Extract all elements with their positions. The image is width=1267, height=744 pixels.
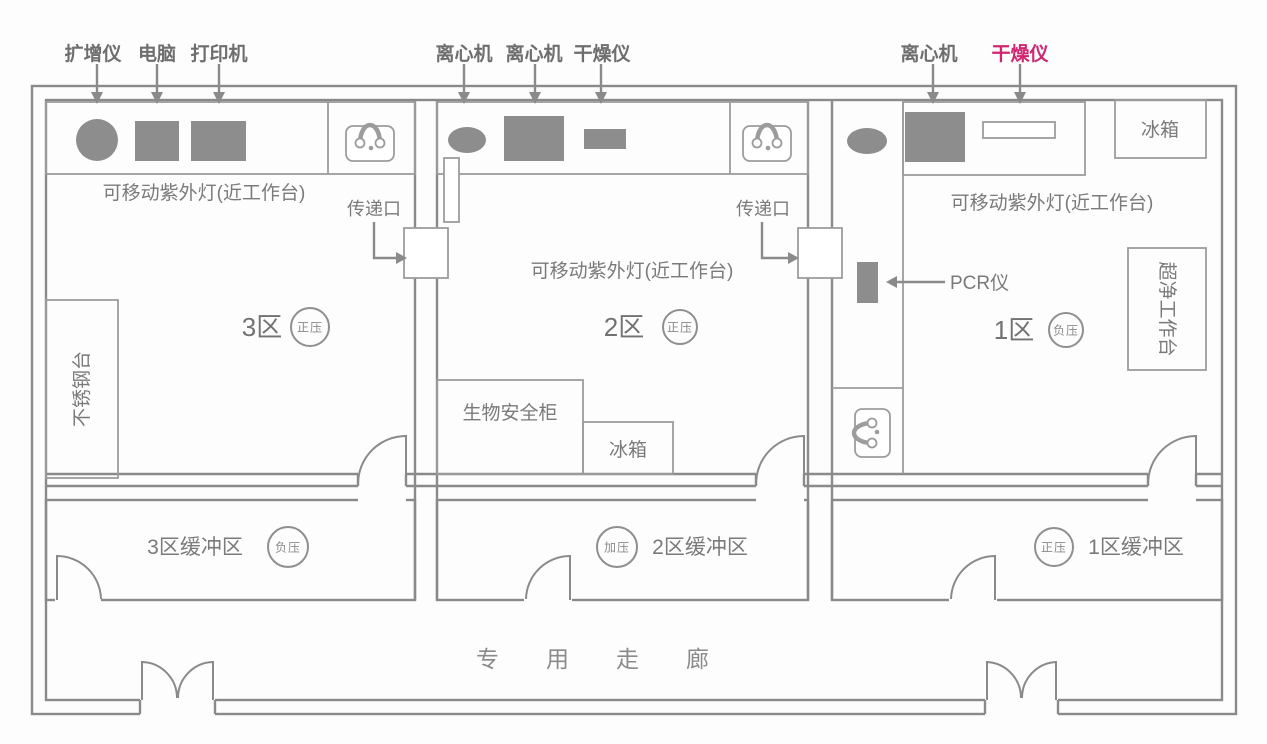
pass-window-box-left [404,228,448,278]
pcr-lab-floorplan: 扩增仪 电脑 打印机 离心机 离心机 干燥仪 离心机 干燥仪 可移动紫外灯(近工… [0,0,1267,744]
floorplan-canvas: 扩增仪 电脑 打印机 离心机 离心机 干燥仪 离心机 干燥仪 可移动紫外灯(近工… [0,0,1267,744]
centrifuge-shape [847,128,887,154]
centrifuge-shape [448,127,486,153]
callout-arrows [91,64,1026,288]
zone3-uv-note: 可移动紫外灯(近工作台) [103,182,306,204]
pcr-label: PCR仪 [950,273,1009,294]
pressure-badge-buffer1-text: 正压 [1041,541,1067,555]
outer-walls [32,86,1236,714]
biosafety-cabinet-label: 生物安全柜 [462,402,557,424]
equipment-label-centrifuge: 离心机 [435,42,492,65]
pressure-badge-buffer2-text: 加压 [604,541,630,555]
zone1-label: 1区 [994,315,1034,345]
zone1-uv-note: 可移动紫外灯(近工作台) [951,192,1154,214]
pressure-badge-zone1-text: 负压 [1053,324,1079,338]
steel-table-label: 不锈钢台 [71,351,93,427]
biosafety-cabinet-box [437,380,583,474]
pressure-badge-buffer3-text: 负压 [275,541,301,555]
door-buffer3-corridor [57,556,101,600]
centrifuge-shape [504,116,564,161]
sink-icon [743,125,791,161]
zone1-fridge-label: 冰箱 [1141,119,1179,141]
clean-bench-label: 超净工作台 [1156,261,1178,356]
dryer-shape [983,122,1055,138]
door-buffer2-corridor [526,556,570,600]
centrifuge-shape [905,112,965,162]
equipment-label-computer: 电脑 [138,42,176,65]
equipment-label-dryer: 干燥仪 [573,43,631,65]
computer-shape [135,121,179,161]
equipment [76,112,1055,457]
zone2-label: 2区 [604,312,644,342]
dryer-shape [584,129,626,149]
zone2-uv-note: 可移动紫外灯(近工作台) [531,260,734,282]
door-buffer1-corridor [951,556,995,600]
printer-shape [191,121,246,161]
equipment-label-printer: 打印机 [190,42,247,65]
buffer2-label: 2区缓冲区 [652,536,748,559]
equipment-label-centrifuge: 离心机 [505,42,562,65]
amplifier-shape [76,119,118,161]
buffer3-label: 3区缓冲区 [147,536,243,559]
thin-fixture [444,158,459,222]
pcr-machine-shape [857,262,878,303]
zone3-label: 3区 [242,312,282,342]
pressure-badge-zone2-text: 正压 [667,321,693,335]
buffer1-label: 1区缓冲区 [1088,536,1184,559]
sink-icon [854,409,890,457]
equipment-label-amplifier: 扩增仪 [64,42,122,65]
corridor-label: 专用走廊 [476,646,756,672]
sink-icon [346,125,394,161]
pass-window-label: 传递口 [736,199,790,219]
pass-window-box-right [798,228,842,278]
zone2-fridge-label: 冰箱 [609,439,647,461]
equipment-label-dryer-highlight: 干燥仪 [991,43,1049,65]
equipment-label-centrifuge: 离心机 [900,42,957,65]
pass-window-label: 传递口 [347,199,401,219]
pressure-badge-zone3-text: 正压 [297,321,323,335]
